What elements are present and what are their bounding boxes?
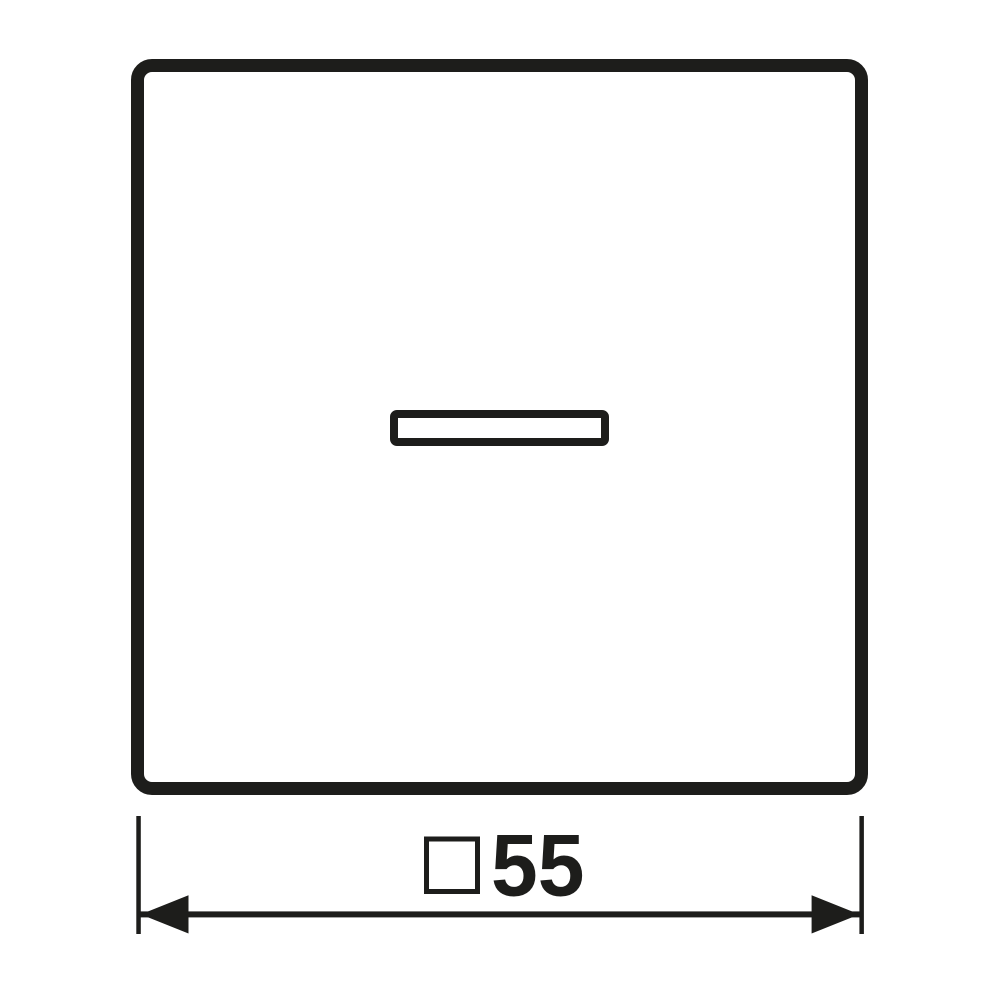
svg-text:55: 55 bbox=[491, 816, 584, 914]
